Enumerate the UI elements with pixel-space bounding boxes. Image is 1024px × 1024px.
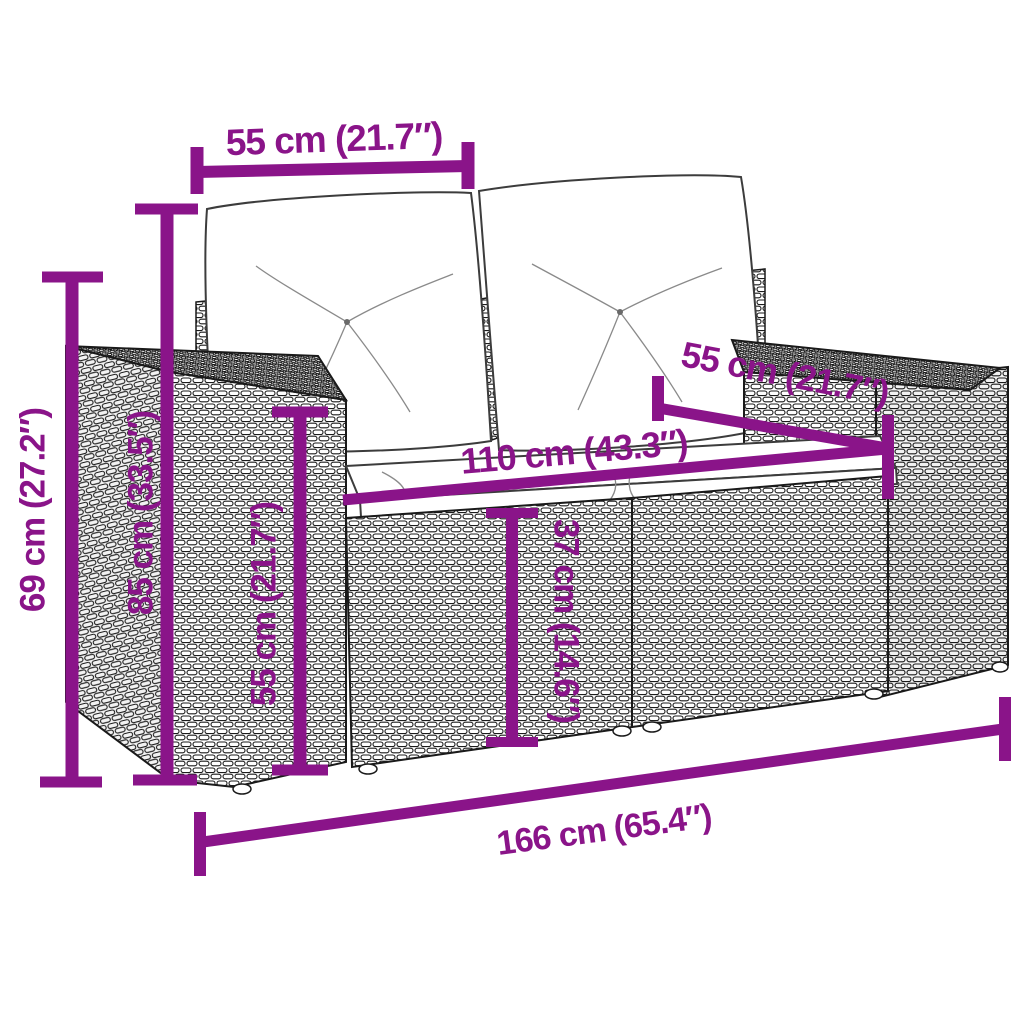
dimension-label-arm-height: 55 cm (21.7″): [247, 502, 282, 706]
dimension-label-seat-height: 37 cm (14.6″): [549, 519, 584, 723]
seat-base-right: [632, 476, 888, 727]
dimension-label-back-height: 85 cm (33.5″): [124, 411, 159, 615]
seat-bases: [346, 476, 888, 767]
dimension-label-total-height: 69 cm (27.2″): [16, 408, 51, 612]
product-dimension-diagram: 55 cm (21.7″) 69 cm (27.2″) 85 cm (33.5″…: [0, 0, 1024, 1024]
dimension-label-back-cushion-width: 55 cm (21.7″): [225, 117, 443, 162]
seat-base-left: [346, 498, 632, 767]
